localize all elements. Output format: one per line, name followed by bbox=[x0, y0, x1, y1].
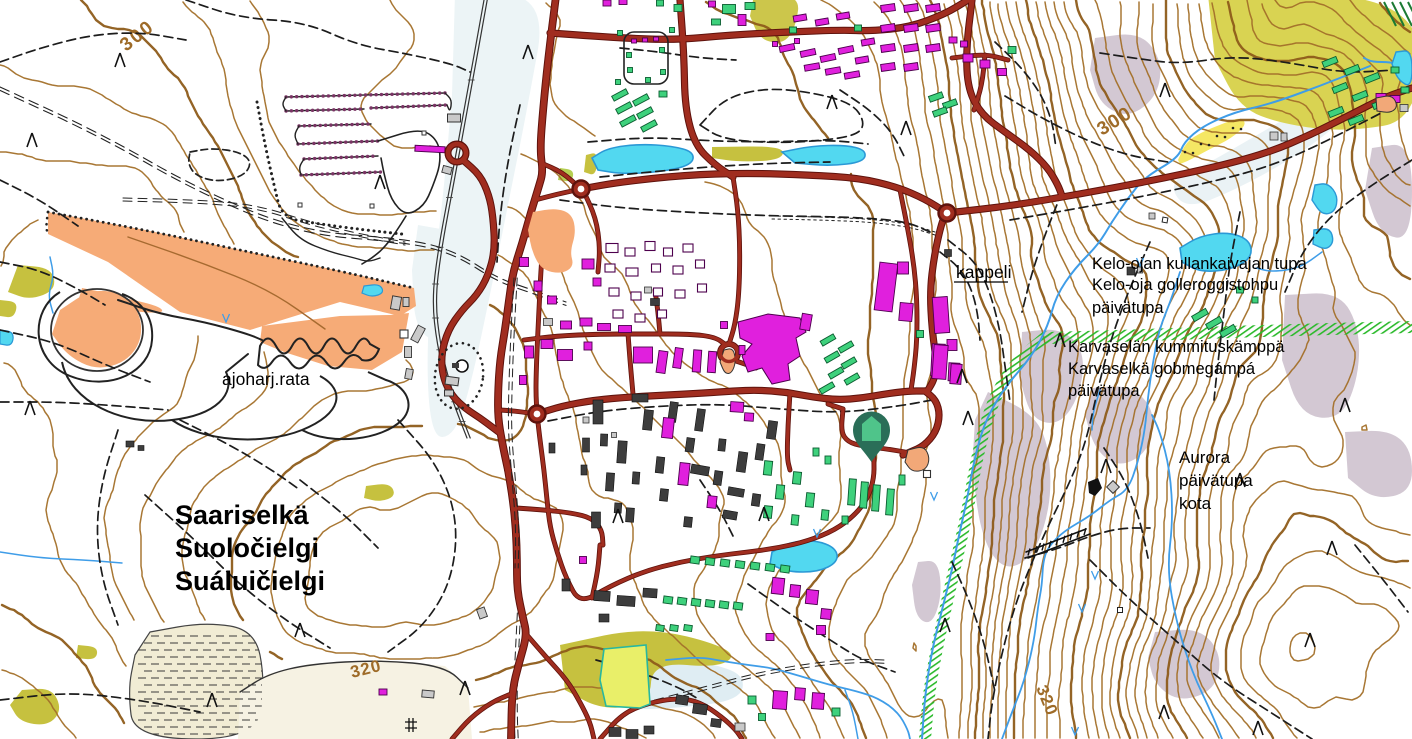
svg-text:päivätupa: päivätupa bbox=[1068, 382, 1140, 400]
svg-text:päivätupa: päivätupa bbox=[1092, 299, 1164, 317]
svg-text:päivätupa: päivätupa bbox=[1179, 471, 1253, 490]
svg-text:Kelo-oja golleroggistohpu: Kelo-oja golleroggistohpu bbox=[1092, 276, 1278, 294]
svg-text:Kelo-ojan kullankaivajan tupa: Kelo-ojan kullankaivajan tupa bbox=[1092, 255, 1307, 273]
svg-text:Aurora: Aurora bbox=[1179, 448, 1231, 467]
svg-text:Saariselkä: Saariselkä bbox=[175, 500, 310, 530]
svg-text:Suoločielgi: Suoločielgi bbox=[175, 533, 319, 563]
svg-text:Karvaselkä gobmegámpá: Karvaselkä gobmegámpá bbox=[1068, 360, 1256, 378]
svg-text:Karvaselän kummituskämppä: Karvaselän kummituskämppä bbox=[1068, 338, 1285, 356]
svg-text:Suáluičielgi: Suáluičielgi bbox=[175, 566, 325, 596]
svg-text:kota: kota bbox=[1179, 494, 1212, 513]
svg-text:kappeli: kappeli bbox=[956, 262, 1011, 282]
svg-text:ajoharj.rata: ajoharj.rata bbox=[222, 369, 310, 389]
